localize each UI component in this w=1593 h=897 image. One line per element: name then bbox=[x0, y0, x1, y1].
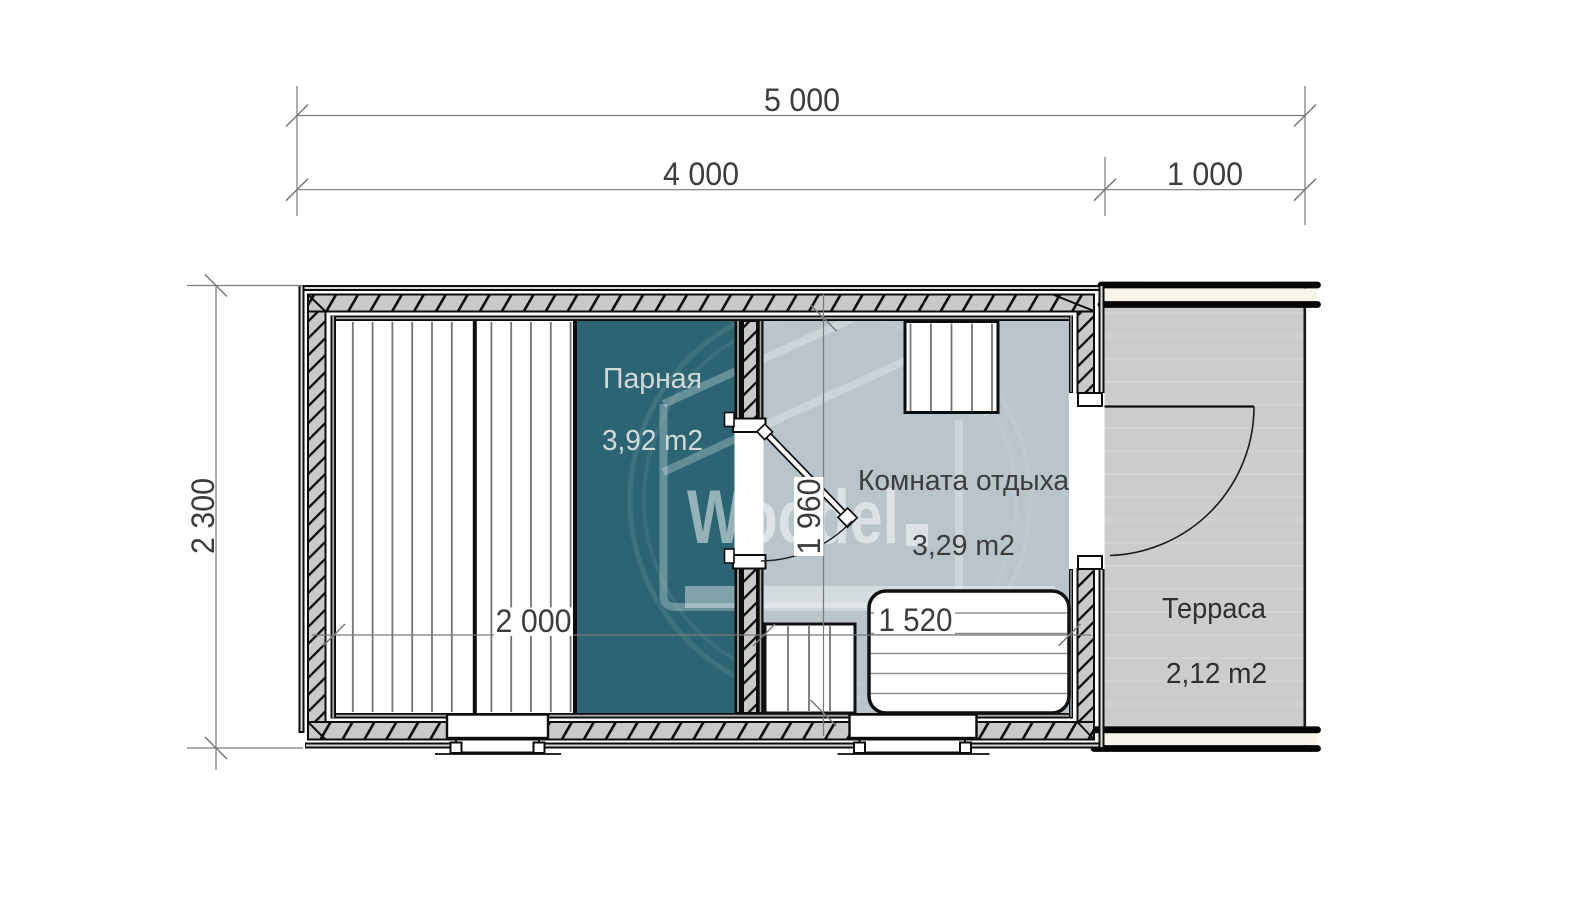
svg-text:2 300: 2 300 bbox=[185, 478, 221, 554]
svg-text:Терраса: Терраса bbox=[1162, 593, 1267, 625]
svg-text:3,29 m2: 3,29 m2 bbox=[912, 530, 1015, 562]
svg-text:1 520: 1 520 bbox=[879, 602, 953, 638]
svg-text:2,12 m2: 2,12 m2 bbox=[1166, 658, 1267, 690]
svg-text:5 000: 5 000 bbox=[764, 82, 840, 118]
svg-text:1 000: 1 000 bbox=[1167, 156, 1243, 192]
svg-text:Парная: Парная bbox=[603, 363, 702, 395]
svg-text:3,92 m2: 3,92 m2 bbox=[602, 425, 703, 457]
svg-text:1 960: 1 960 bbox=[791, 479, 827, 555]
svg-text:Комната отдыха: Комната отдыха bbox=[858, 465, 1070, 497]
svg-text:2 000: 2 000 bbox=[496, 603, 572, 639]
svg-text:4 000: 4 000 bbox=[663, 156, 739, 192]
